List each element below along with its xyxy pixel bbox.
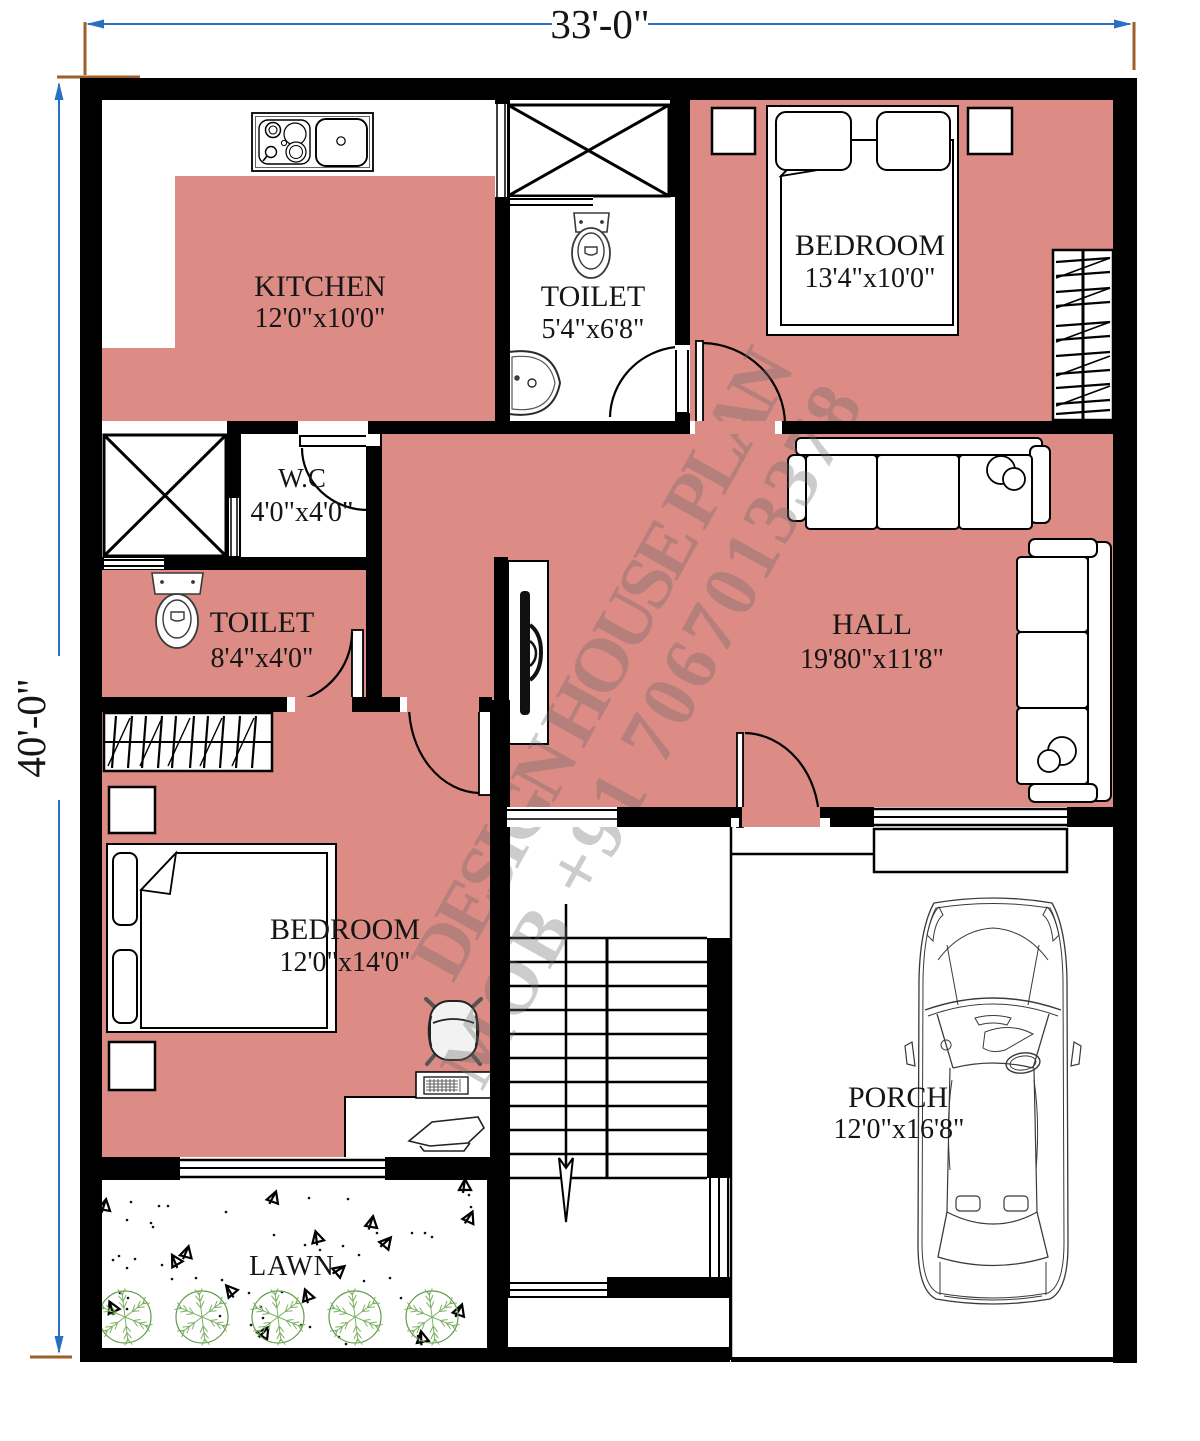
svg-text:5'4"x6'8": 5'4"x6'8" — [542, 314, 645, 345]
svg-text:12'0"x10'0": 12'0"x10'0" — [255, 303, 386, 334]
svg-text:KITCHEN: KITCHEN — [254, 270, 386, 303]
svg-text:BEDROOM: BEDROOM — [795, 229, 945, 262]
svg-text:19'80"x11'8": 19'80"x11'8" — [800, 644, 944, 675]
svg-text:HALL: HALL — [832, 608, 912, 641]
svg-text:PORCH: PORCH — [848, 1081, 948, 1114]
svg-text:LAWN: LAWN — [249, 1251, 335, 1282]
svg-text:40'-0": 40'-0" — [8, 678, 54, 777]
svg-text:33'-0": 33'-0" — [550, 1, 649, 47]
svg-text:BEDROOM: BEDROOM — [270, 913, 420, 946]
svg-text:4'0"x4'0": 4'0"x4'0" — [251, 497, 354, 528]
svg-text:12'0"x16'8": 12'0"x16'8" — [834, 1114, 965, 1145]
svg-text:13'4"x10'0": 13'4"x10'0" — [805, 263, 936, 294]
svg-text:12'0"x14'0": 12'0"x14'0" — [280, 947, 411, 978]
svg-text:W.C: W.C — [278, 463, 326, 493]
svg-text:TOILET: TOILET — [541, 280, 645, 313]
svg-text:8'4"x4'0": 8'4"x4'0" — [211, 643, 314, 674]
svg-text:TOILET: TOILET — [210, 606, 314, 639]
